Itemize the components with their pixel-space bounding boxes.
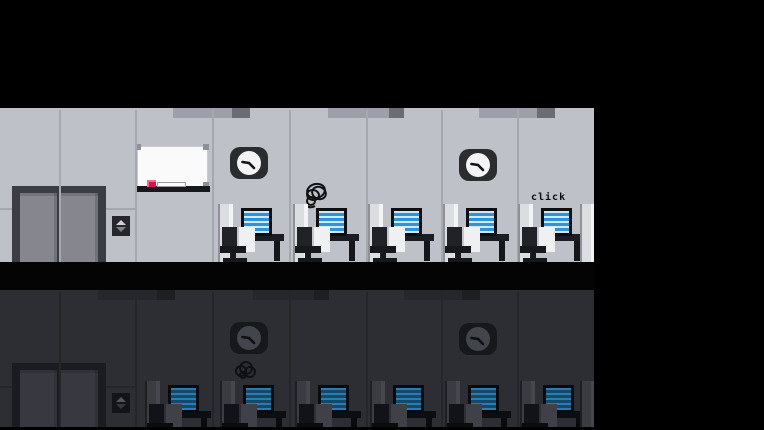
wall-clock <box>459 149 497 181</box>
desk-leg <box>426 418 432 427</box>
elevator-door-right[interactable] <box>60 193 98 263</box>
ceiling-trim <box>537 108 555 118</box>
wall-seam <box>517 292 519 427</box>
desk-leg <box>501 418 507 427</box>
clock-hands <box>466 153 490 177</box>
clock-face <box>466 327 490 351</box>
cubicle-divider-edge <box>591 204 594 263</box>
wall-seam <box>441 292 443 427</box>
elevator-door-left[interactable] <box>20 370 57 427</box>
wall-seam <box>59 110 61 263</box>
ceiling-trim <box>98 290 157 300</box>
clock-face <box>466 153 490 177</box>
ceiling-trim <box>462 290 480 300</box>
clock-hands <box>237 326 261 350</box>
wall-seam <box>212 110 214 263</box>
wall-seam <box>366 292 368 427</box>
ceiling-trim <box>232 108 250 118</box>
office-chair-seat <box>220 246 246 253</box>
whiteboard-marker-red <box>147 180 156 187</box>
ceiling-trim <box>314 290 329 300</box>
ceiling-trim <box>328 108 389 118</box>
ceiling-trim <box>173 108 232 118</box>
cubicle-divider <box>582 204 591 263</box>
ceiling-trim <box>479 108 537 118</box>
wall-clock <box>459 323 497 355</box>
desk-leg <box>424 241 430 261</box>
desk-leg <box>499 241 505 261</box>
office-floor-upper: click <box>0 108 594 263</box>
up-arrow-icon <box>116 220 126 225</box>
clock-face <box>237 326 261 350</box>
desk-leg <box>274 241 280 261</box>
down-arrow-icon <box>116 227 126 232</box>
wall-seam <box>59 292 61 427</box>
wall-clock <box>230 322 268 354</box>
whiteboard-eraser <box>157 182 186 187</box>
down-arrow-icon <box>116 404 126 409</box>
ceiling-trim <box>404 290 462 300</box>
elevator-door-right[interactable] <box>60 370 98 427</box>
game-viewport: click <box>0 0 764 430</box>
wall-seam <box>212 292 214 427</box>
up-arrow-icon <box>116 397 126 402</box>
clock-hands <box>466 327 490 351</box>
elevator-call-button-lower[interactable] <box>112 393 130 413</box>
office-chair-seat <box>520 246 546 253</box>
ceiling-trim <box>157 290 175 300</box>
wall-seam <box>289 292 291 427</box>
cubicle-divider-edge <box>591 381 594 427</box>
whiteboard-bracket <box>203 144 209 150</box>
wall-clock <box>230 147 268 179</box>
desk-leg <box>276 418 282 427</box>
wall-seam <box>135 110 137 263</box>
desk-leg <box>349 241 355 261</box>
office-chair-seat <box>370 246 396 253</box>
ceiling-trim <box>389 108 404 118</box>
cubicle-divider <box>582 381 591 427</box>
clock-face <box>237 151 261 175</box>
desk-leg <box>351 418 357 427</box>
elevator-call-button[interactable] <box>112 216 130 236</box>
wall-seam <box>135 292 137 427</box>
office-chair-seat <box>445 246 471 253</box>
office-chair-seat <box>295 246 321 253</box>
office-floor-lower <box>0 290 594 427</box>
scribble-character-lower <box>233 358 258 382</box>
wall-seam <box>289 110 291 263</box>
clock-hands <box>237 151 261 175</box>
elevator-door-left[interactable] <box>20 193 57 263</box>
floor-slab <box>0 262 594 290</box>
click-sound-effect-text: click <box>531 192 587 203</box>
ceiling-trim <box>253 290 314 300</box>
desk-leg <box>201 418 207 427</box>
